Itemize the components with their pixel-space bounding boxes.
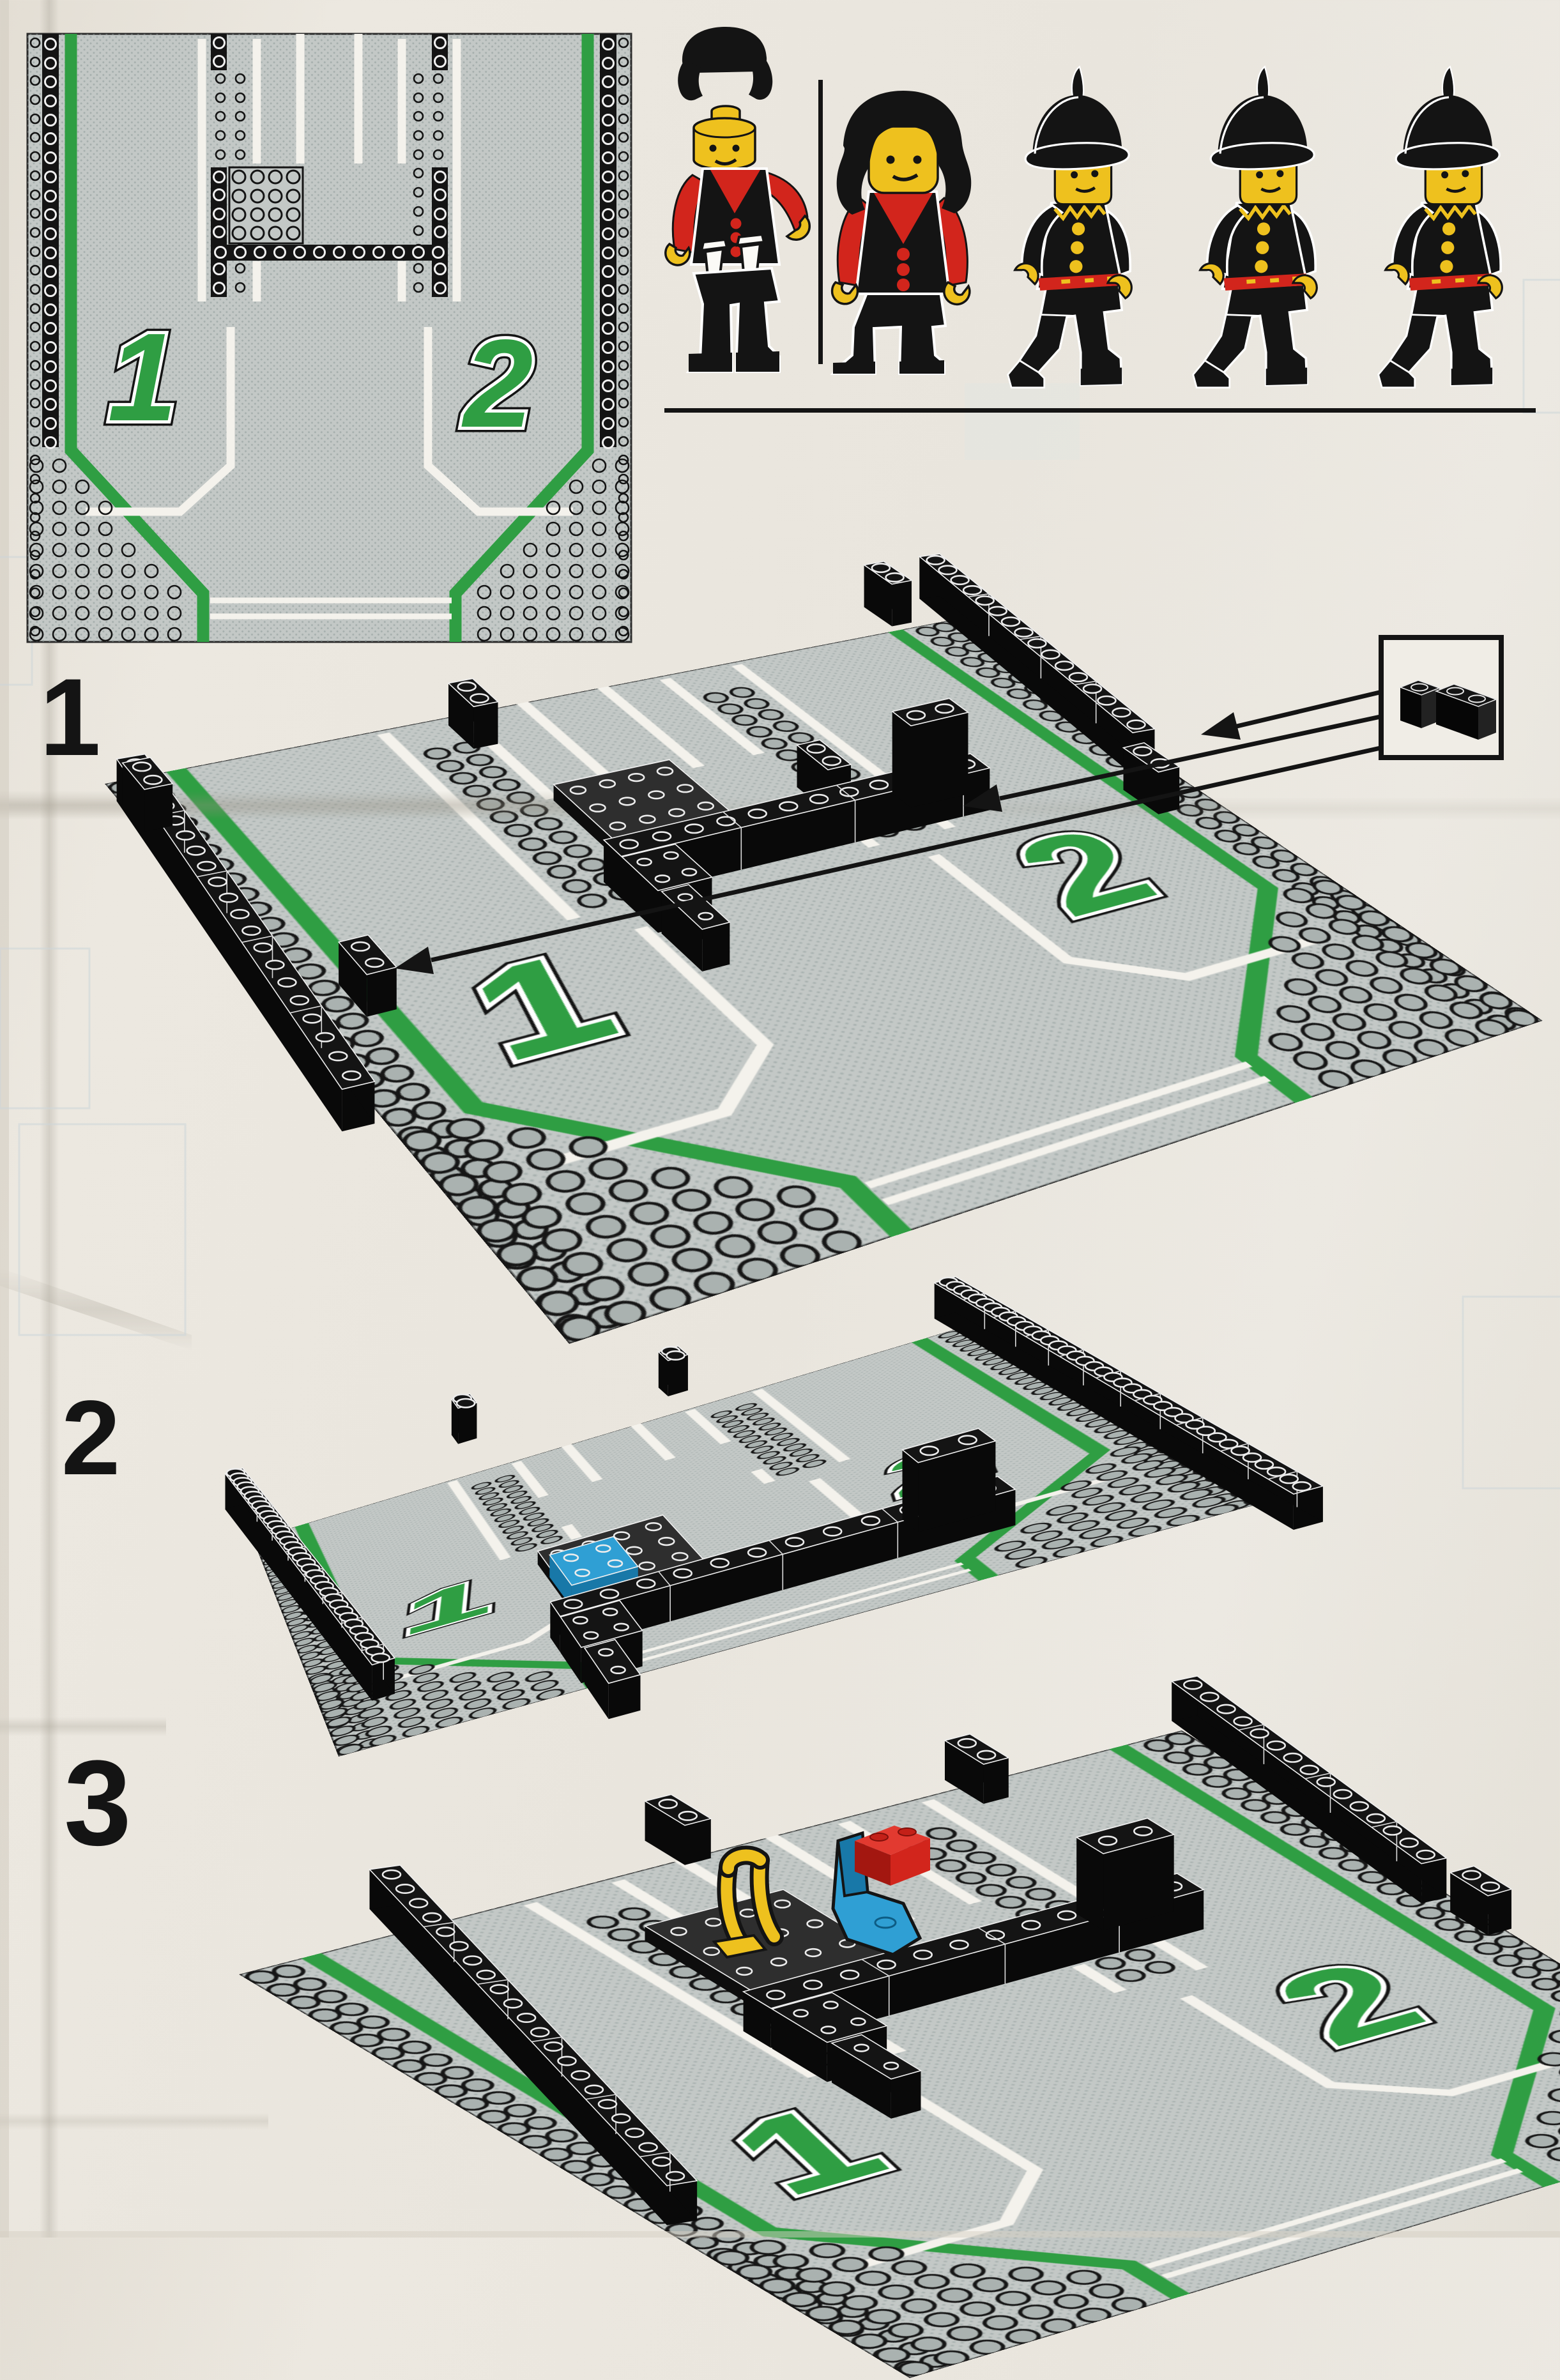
svg-text:3: 3 — [64, 1735, 132, 1871]
svg-text:2: 2 — [461, 314, 533, 454]
svg-text:1: 1 — [107, 307, 177, 447]
svg-text:2: 2 — [61, 1379, 120, 1497]
svg-text:1: 1 — [40, 656, 101, 779]
